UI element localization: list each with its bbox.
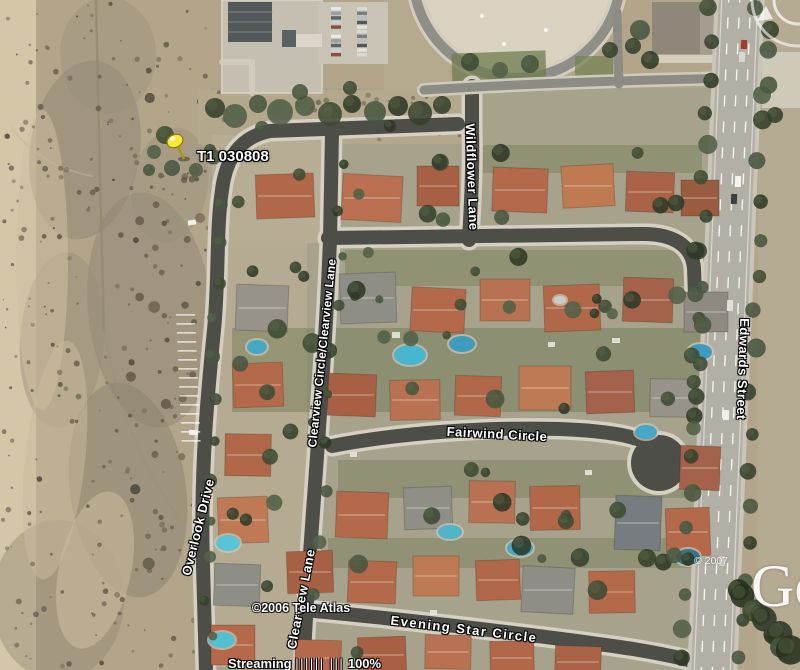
placemark-pushpin-icon[interactable] — [163, 130, 195, 166]
earth-view[interactable]: T1 030808 Wildflower Lane Edwards Street… — [0, 0, 800, 670]
google-watermark: Go — [751, 556, 800, 616]
google-copyright: © 2007 — [694, 555, 728, 567]
streaming-status: Streaming |||||| ||| 100% — [228, 656, 381, 670]
streaming-percent: 100% — [348, 656, 381, 670]
placemark-label: T1 030808 — [197, 148, 269, 165]
streaming-progress-bars: |||||| ||| — [295, 656, 344, 670]
compass-navigation-icon[interactable] — [730, 0, 800, 60]
imagery-copyright: ©2006 Tele Atlas — [252, 601, 350, 615]
satellite-imagery[interactable] — [0, 0, 800, 670]
streaming-label: Streaming — [228, 656, 292, 670]
